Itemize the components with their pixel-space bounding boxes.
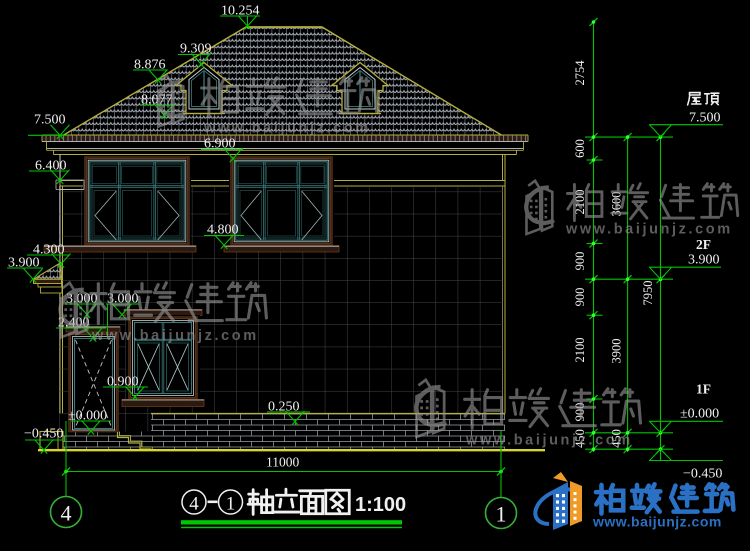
svg-text:600: 600 xyxy=(573,139,587,158)
svg-text:1: 1 xyxy=(496,502,507,527)
svg-text:2754: 2754 xyxy=(573,60,587,86)
svg-text:www.baijunjz.com: www.baijunjz.com xyxy=(465,433,633,449)
svg-text:4: 4 xyxy=(61,501,72,526)
svg-text:4: 4 xyxy=(189,494,199,515)
svg-text:900: 900 xyxy=(573,252,587,271)
svg-text:2100: 2100 xyxy=(573,338,587,363)
svg-text:±0.000: ±0.000 xyxy=(680,407,719,422)
svg-text:3.900: 3.900 xyxy=(688,253,720,268)
svg-text:−0.450: −0.450 xyxy=(24,427,63,442)
svg-text:3900: 3900 xyxy=(610,339,624,364)
svg-text:www.baijunjz.com: www.baijunjz.com xyxy=(203,121,371,137)
svg-text:www.baijunjz.com: www.baijunjz.com xyxy=(592,514,722,530)
svg-text:900: 900 xyxy=(573,288,587,307)
svg-text:7950: 7950 xyxy=(641,281,655,306)
svg-text:−0.450: −0.450 xyxy=(683,467,722,482)
svg-text:www.baijunjz.com: www.baijunjz.com xyxy=(91,328,259,344)
svg-text:7.500: 7.500 xyxy=(689,111,721,126)
svg-text:2F: 2F xyxy=(696,237,711,252)
svg-text:7.500: 7.500 xyxy=(34,113,66,128)
svg-text:1: 1 xyxy=(226,494,236,515)
svg-text:www.baijunjz.com: www.baijunjz.com xyxy=(565,222,733,238)
svg-text:1:100: 1:100 xyxy=(355,494,406,516)
svg-text:1F: 1F xyxy=(696,382,711,397)
svg-text:11000: 11000 xyxy=(266,455,299,470)
